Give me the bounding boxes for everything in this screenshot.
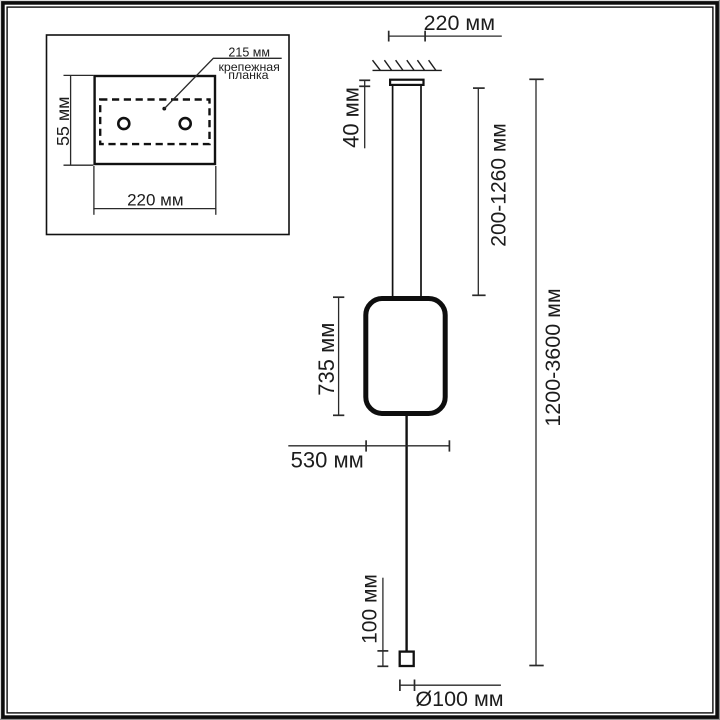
svg-text:200-1260 мм: 200-1260 мм [488,123,511,246]
svg-text:220 мм: 220 мм [127,191,183,210]
svg-text:530 мм: 530 мм [291,448,364,473]
svg-text:215 мм: 215 мм [228,46,270,60]
svg-text:40 мм: 40 мм [339,87,364,148]
svg-text:планка: планка [228,68,268,82]
svg-text:100 мм: 100 мм [359,574,382,644]
svg-text:220 мм: 220 мм [424,11,495,35]
svg-text:735 мм: 735 мм [314,323,339,396]
svg-text:Ø100 мм: Ø100 мм [415,687,503,711]
svg-text:55 мм: 55 мм [53,97,73,146]
svg-text:1200-3600 мм: 1200-3600 мм [541,288,565,426]
